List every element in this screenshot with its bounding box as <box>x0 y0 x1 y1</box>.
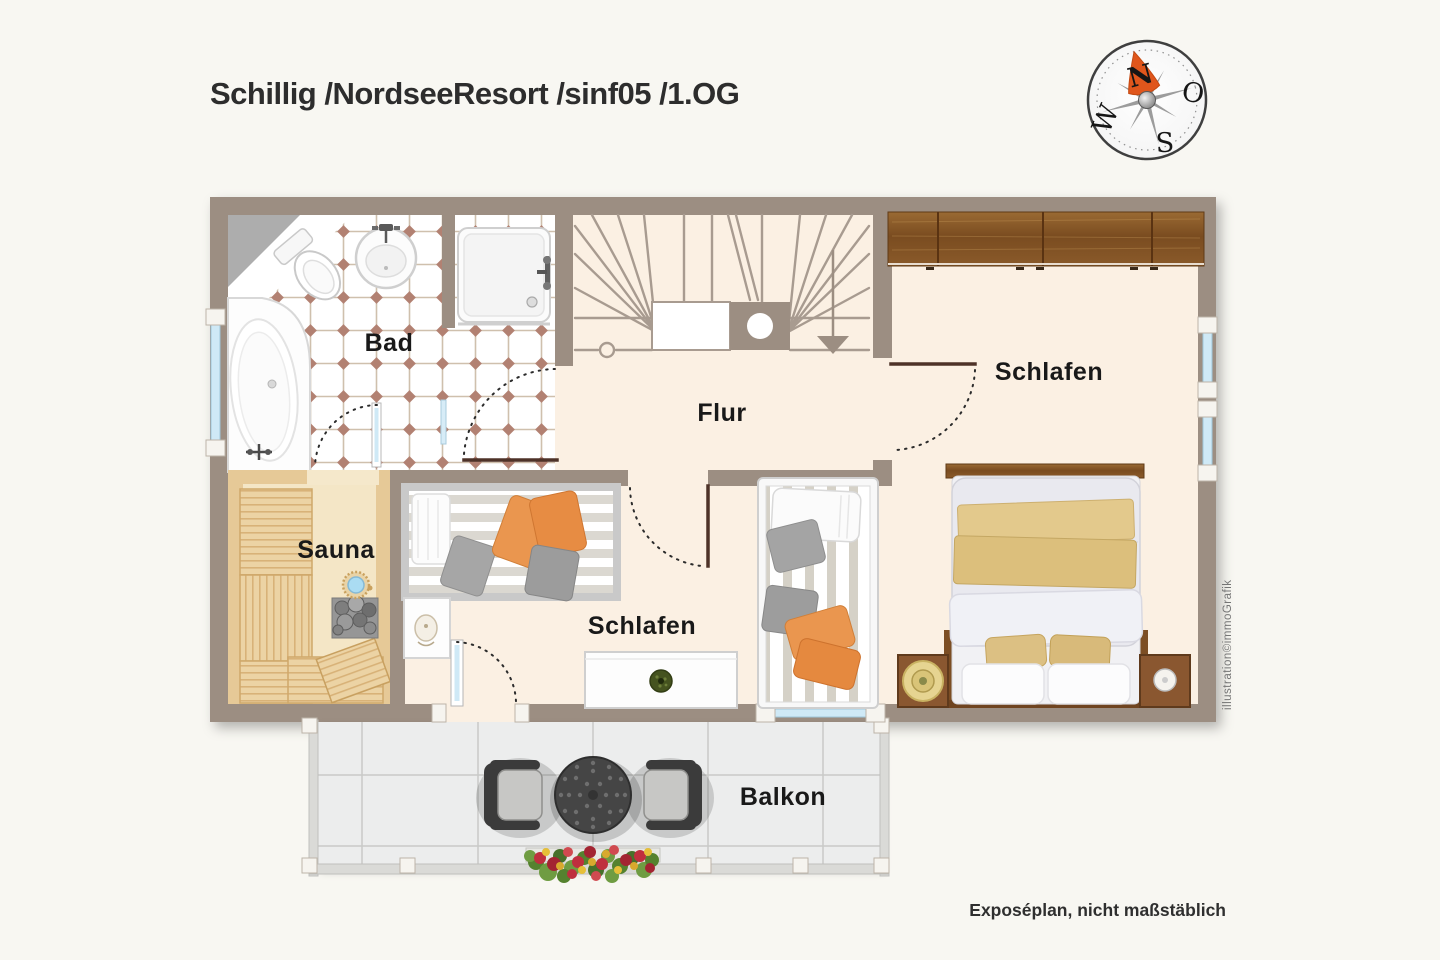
room-label-balkon: Balkon <box>740 783 826 811</box>
sauna-stones-icon <box>332 596 378 638</box>
room-label-schlafen-right: Schlafen <box>995 358 1103 386</box>
shower-icon <box>458 228 551 324</box>
compass-letter-s: S <box>1155 127 1175 159</box>
single-bed <box>758 478 878 708</box>
dresser <box>585 652 737 708</box>
balcony-chair-left <box>484 760 542 830</box>
footer-note: Exposéplan, nicht maßstäblich <box>969 900 1226 921</box>
sauna-doorway <box>307 470 379 485</box>
daybed <box>405 487 617 602</box>
towel-rail-icon <box>441 400 446 444</box>
bathtub-icon <box>224 298 310 472</box>
room-label-bad: Bad <box>365 329 414 357</box>
balcony-chair-right <box>644 760 702 830</box>
room-balkon: Balkon <box>302 718 889 883</box>
floor-plan-page: Schillig /NordseeResort /sinf05 /1.OG <box>0 0 1440 960</box>
room-label-sauna: Sauna <box>297 536 375 564</box>
room-label-flur: Flur <box>697 399 746 427</box>
watermark-credit: illustration©immoGrafik <box>1222 579 1234 710</box>
stair-newel <box>600 343 614 357</box>
room-bad: Bad <box>224 215 555 472</box>
flower-box <box>524 845 660 883</box>
double-bed <box>944 464 1148 708</box>
stair-landing <box>652 302 730 350</box>
balcony-table <box>555 757 631 833</box>
wardrobe <box>888 212 1204 270</box>
room-label-schlafen-middle: Schlafen <box>588 612 696 640</box>
nightstand-right <box>1140 655 1190 707</box>
stair-core-circle <box>747 313 773 339</box>
nightstand-left <box>898 655 948 707</box>
balcony-doorway <box>432 704 529 722</box>
nightstand-lamp <box>404 598 450 658</box>
compass-rose: N O S W <box>1069 27 1224 179</box>
floor-plan-svg: Bad <box>0 0 1440 960</box>
room-sauna: Sauna <box>228 470 390 704</box>
